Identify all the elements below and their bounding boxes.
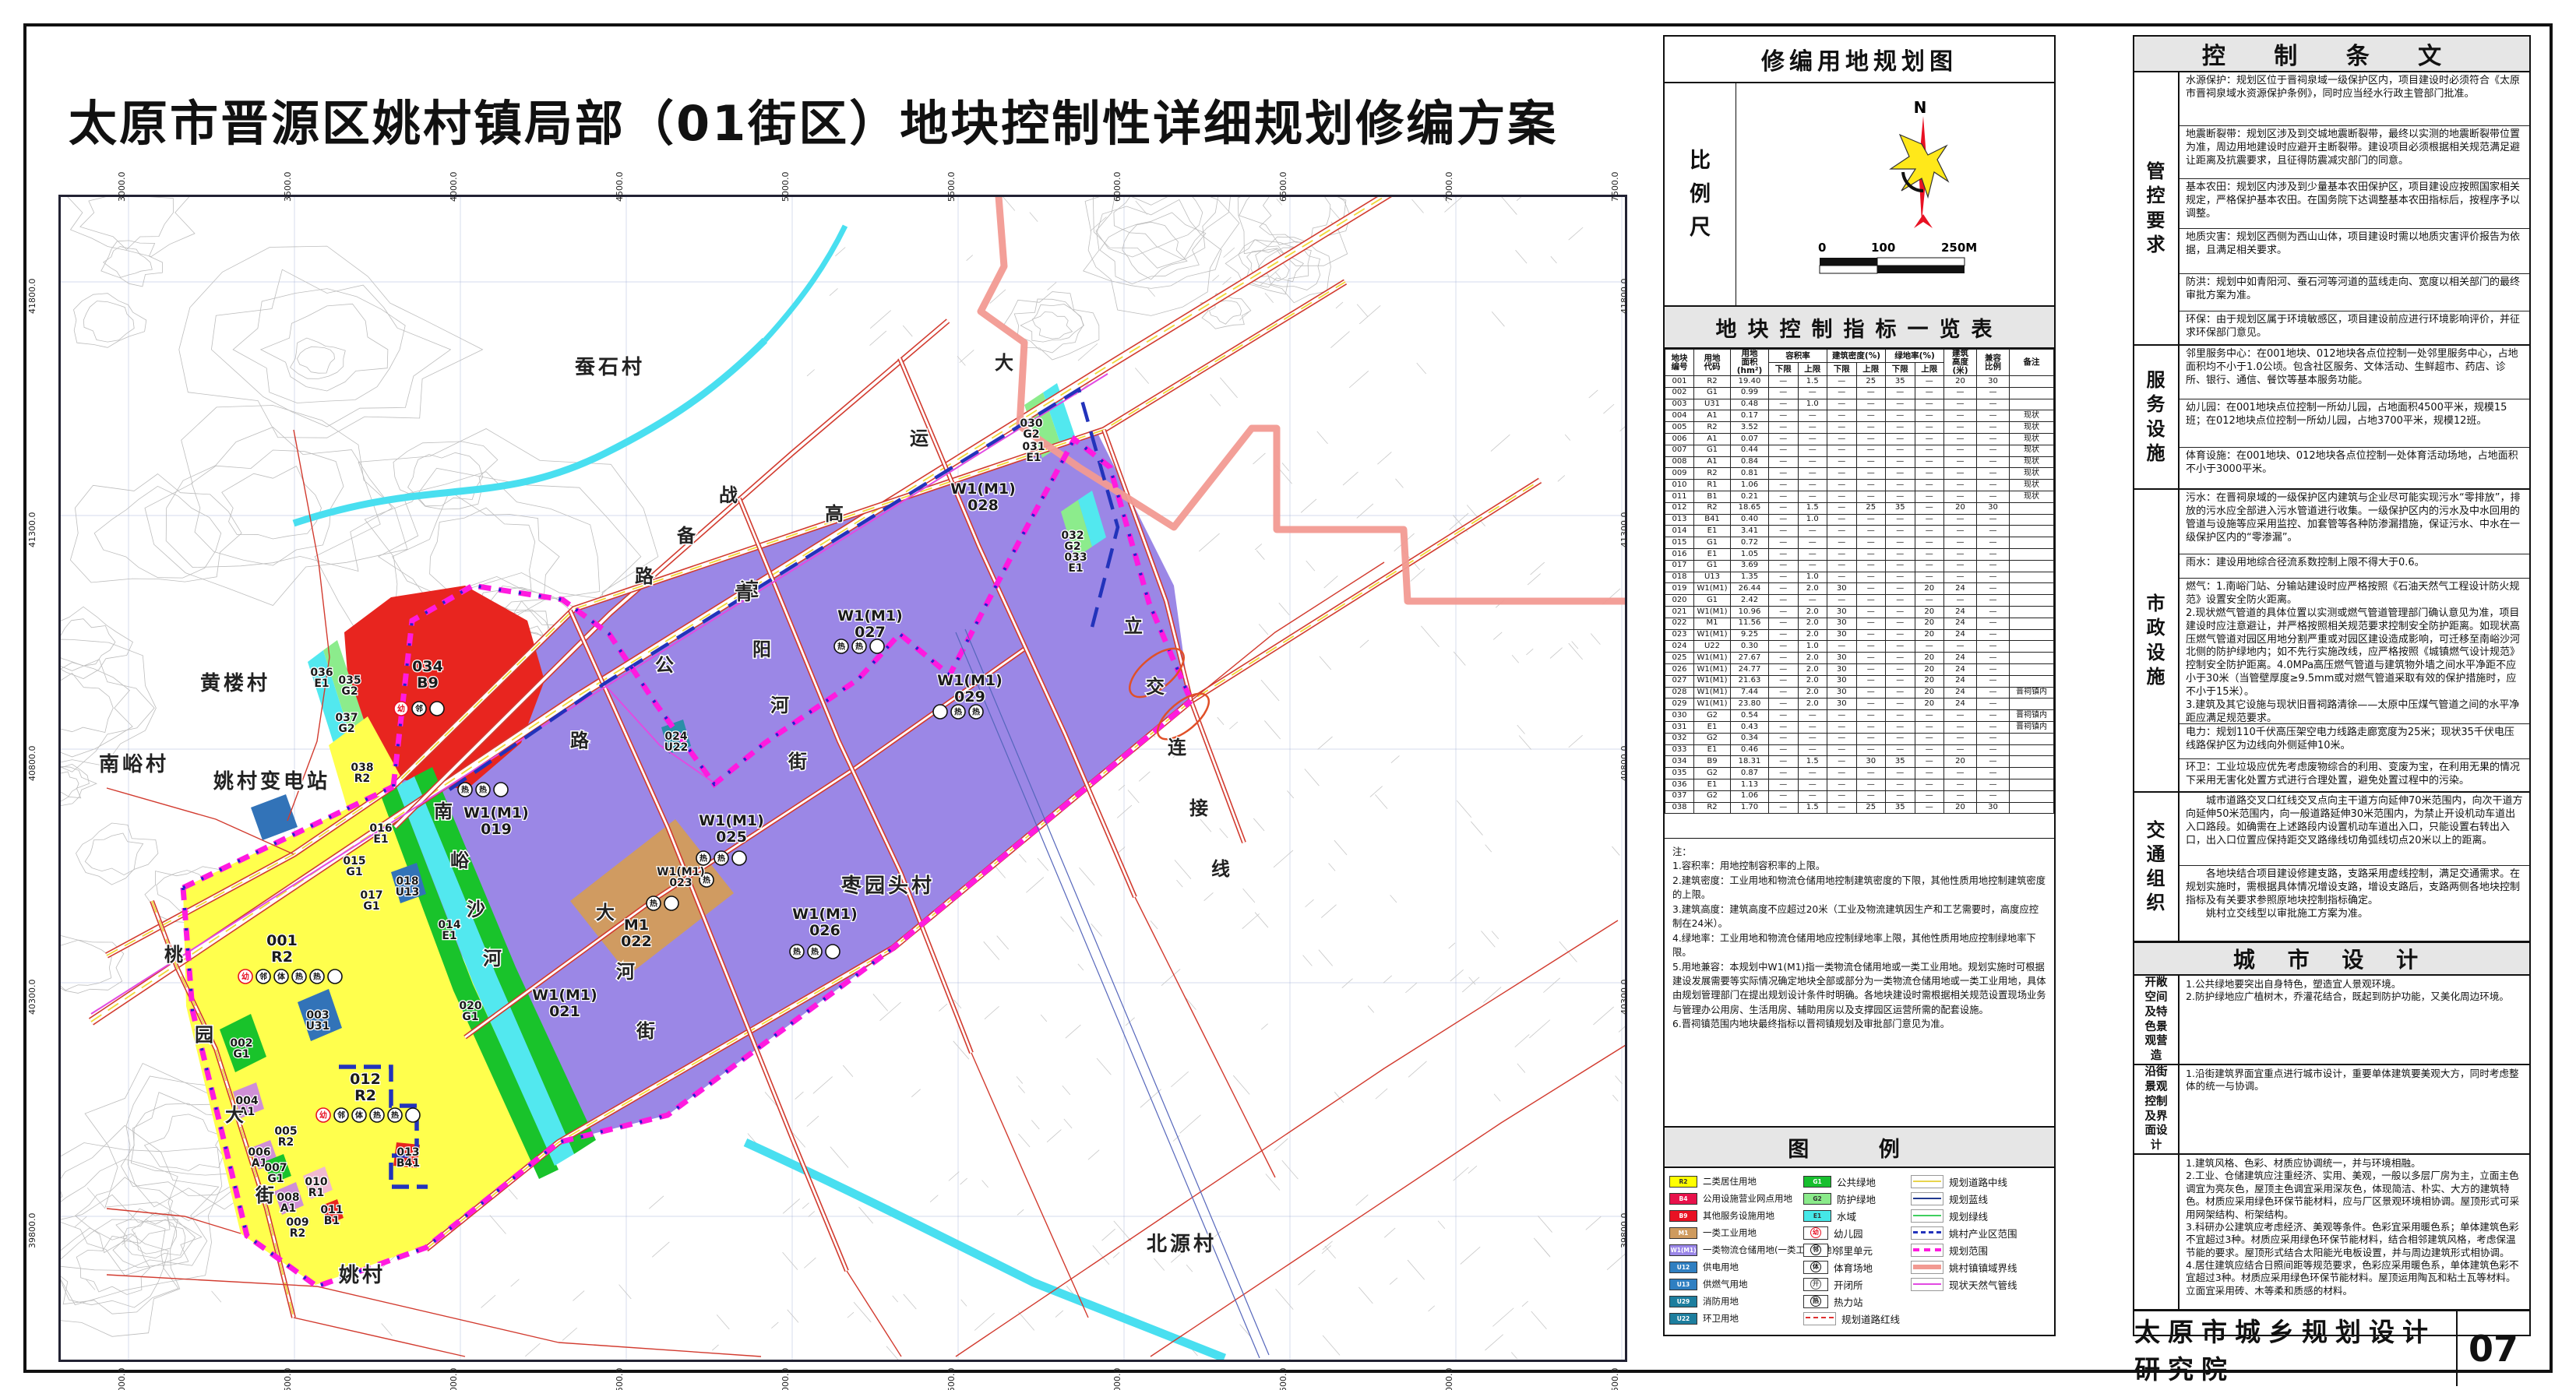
- table-row: 024U220.30—1.0——————: [1665, 641, 2054, 653]
- table-cell: W1(M1): [1694, 663, 1731, 675]
- table-cell: 现状: [2010, 422, 2054, 434]
- svg-text:大: 大: [995, 352, 1013, 374]
- svg-text:接: 接: [1189, 797, 1208, 819]
- svg-text:100: 100: [1871, 241, 1895, 255]
- table-cell: M1: [1694, 618, 1731, 629]
- table-cell: 20: [1944, 502, 1977, 514]
- legend-label: 体育场地: [1834, 1260, 1873, 1275]
- table-cell: 1.0: [1798, 641, 1827, 653]
- table-cell: —: [1827, 491, 1857, 503]
- svg-text:热: 热: [700, 853, 707, 864]
- table-cell: —: [1944, 641, 1977, 653]
- table-cell: B9: [1694, 756, 1731, 768]
- provision-item: 防洪：规划中如青阳河、蚕石河等河道的蓝线走向、宽度以相关部门的最终审批方案为准。: [2180, 273, 2529, 311]
- table-cell: —: [1886, 733, 1915, 744]
- table-cell: —: [1915, 768, 1944, 779]
- table-cell: —: [1856, 744, 1886, 756]
- svg-text:黄楼村: 黄楼村: [200, 672, 270, 695]
- table-cell: —: [1769, 779, 1799, 790]
- table-cell: 20: [1915, 675, 1944, 687]
- table-header: 兼容 比例: [1977, 350, 2010, 376]
- legend-item: 规划绿线: [1911, 1207, 2043, 1224]
- svg-text:幼: 幼: [397, 704, 405, 714]
- svg-text:热: 热: [479, 785, 487, 795]
- table-cell: 30: [1827, 653, 1857, 664]
- table-cell: E1: [1694, 779, 1731, 790]
- svg-text:W1(M1): W1(M1): [699, 812, 764, 829]
- urban-design-section: 开敞空间及特色景观营造1.公共绿地要突出自身特色，塑造宜人景观环境。 2.防护绿…: [2134, 976, 2529, 1065]
- table-cell: 24: [1944, 629, 1977, 641]
- svg-text:枣园头村: 枣园头村: [840, 874, 935, 898]
- coordinate-tick: 40800.0: [27, 746, 37, 782]
- legend-item: U29消防用地: [1669, 1293, 1803, 1310]
- table-cell: 0.40: [1731, 514, 1769, 526]
- table-cell: —: [1769, 480, 1799, 491]
- table-cell: 24: [1944, 699, 1977, 710]
- table-cell: —: [1886, 445, 1915, 456]
- svg-text:E1: E1: [1068, 562, 1083, 575]
- table-cell: —: [1798, 434, 1827, 445]
- table-cell: —: [1915, 560, 1944, 572]
- table-header: 绿地率(%): [1886, 350, 1944, 363]
- urban-design-section: 沿街景观控制及界面设计1.沿街建筑界面宜重点进行城市设计，重要单体建筑要美观大方…: [2134, 1065, 2529, 1155]
- svg-text:E1: E1: [373, 833, 388, 846]
- table-cell: [2010, 699, 2054, 710]
- table-cell: —: [1769, 721, 1799, 733]
- table-cell: —: [1769, 663, 1799, 675]
- table-cell: —: [1886, 710, 1915, 722]
- table-cell: —: [1915, 572, 1944, 583]
- table-row: 038R21.70—1.5—2535—2030: [1665, 802, 2054, 814]
- table-title: 地块控制指标一览表: [1665, 307, 2054, 349]
- svg-text:园: 园: [195, 1024, 213, 1046]
- table-cell: G2: [1694, 733, 1731, 744]
- table-cell: —: [1856, 733, 1886, 744]
- table-cell: —: [1856, 422, 1886, 434]
- legend-item: 规划道路红线: [1803, 1310, 1911, 1327]
- table-cell: —: [1798, 733, 1827, 744]
- table-cell: —: [1915, 595, 1944, 607]
- svg-text:邻: 邻: [337, 1110, 345, 1121]
- table-row: 005R23.52————————现状: [1665, 422, 2054, 434]
- table-cell: 30: [1977, 502, 2010, 514]
- table-cell: —: [1915, 502, 1944, 514]
- table-cell: —: [1915, 422, 1944, 434]
- table-cell: 现状: [2010, 491, 2054, 503]
- table-cell: R2: [1694, 468, 1731, 480]
- table-cell: 26.44: [1731, 583, 1769, 595]
- svg-text:A1: A1: [280, 1202, 297, 1215]
- table-cell: —: [1827, 710, 1857, 722]
- provision-item: 雨水：建设用地综合径流系数控制上限不得大于0.6。: [2180, 554, 2529, 578]
- legend-line-sample: [1911, 1209, 1943, 1223]
- table-cell: —: [1977, 756, 2010, 768]
- table-cell: —: [1798, 560, 1827, 572]
- table-cell: 现状: [2010, 456, 2054, 468]
- table-cell: —: [1827, 468, 1857, 480]
- provision-section: 服务设施邻里服务中心：在001地块、012地块各点位控制一处邻里服务中心，占地面…: [2134, 346, 2529, 490]
- provision-item: 城市道路交叉口红线交叉点向主干道方向延伸70米范围内，向次干道方向延伸50米范围…: [2180, 793, 2529, 865]
- table-cell: —: [1769, 699, 1799, 710]
- table-cell: —: [1977, 445, 2010, 456]
- svg-text:桃: 桃: [164, 944, 183, 966]
- table-cell: [2010, 387, 2054, 399]
- coordinate-tick: 39800.0: [1619, 1213, 1630, 1249]
- svg-text:R2: R2: [271, 948, 293, 966]
- table-cell: —: [1886, 790, 1915, 802]
- table-cell: —: [1886, 434, 1915, 445]
- table-cell: —: [1977, 618, 2010, 629]
- table-cell: —: [1769, 537, 1799, 549]
- table-cell: —: [1977, 514, 2010, 526]
- table-cell: —: [1856, 537, 1886, 549]
- svg-text:028: 028: [967, 497, 999, 514]
- table-cell: U22: [1694, 641, 1731, 653]
- table-cell: —: [1769, 387, 1799, 399]
- svg-text:G1: G1: [233, 1048, 249, 1061]
- legend-label: 二类居住用地: [1703, 1175, 1757, 1188]
- table-cell: W1(M1): [1694, 653, 1731, 664]
- coordinate-tick: 41300.0: [27, 512, 37, 548]
- table-cell: —: [1856, 779, 1886, 790]
- table-cell: [2010, 583, 2054, 595]
- table-cell: [2010, 560, 2054, 572]
- legend-facility-icon: 开: [1803, 1278, 1828, 1291]
- table-cell: [2010, 629, 2054, 641]
- table-cell: G1: [1694, 445, 1731, 456]
- table-cell: 011: [1665, 491, 1694, 503]
- table-row: 026W1(M1)24.77—2.030——2024—: [1665, 663, 2054, 675]
- table-cell: —: [1977, 710, 2010, 722]
- legend-item: E1水域: [1803, 1207, 1911, 1224]
- table-cell: 35: [1886, 756, 1915, 768]
- svg-text:峪: 峪: [450, 850, 470, 871]
- legend-item: B9其他服务设施用地: [1669, 1207, 1803, 1224]
- table-cell: 3.69: [1731, 560, 1769, 572]
- table-row: 027W1(M1)21.63—2.030——2024—: [1665, 675, 2054, 687]
- table-cell: 025: [1665, 653, 1694, 664]
- table-cell: [2010, 618, 2054, 629]
- coordinate-tick: 4500.0: [615, 172, 625, 202]
- table-cell: [2010, 376, 2054, 388]
- table-cell: —: [1977, 629, 2010, 641]
- svg-text:U13: U13: [396, 886, 420, 899]
- svg-text:体: 体: [277, 972, 286, 982]
- table-cell: 24: [1944, 618, 1977, 629]
- svg-text:立: 立: [1124, 615, 1143, 637]
- table-cell: —: [1798, 468, 1827, 480]
- table-cell: —: [1769, 399, 1799, 410]
- table-cell: 30: [1977, 802, 2010, 814]
- table-cell: —: [1856, 675, 1886, 687]
- table-cell: —: [1856, 456, 1886, 468]
- legend-label: 幼儿园: [1834, 1226, 1863, 1240]
- legend-facility-icon: 热: [1803, 1295, 1828, 1308]
- table-cell: —: [1977, 687, 2010, 699]
- table-cell: —: [1944, 526, 1977, 537]
- svg-text:街: 街: [255, 1184, 274, 1206]
- coordinate-tick: 7500.0: [1610, 172, 1620, 202]
- provision-item: 燃气：1.南峪门站、分输站建设时应严格按照《石油天然气工程设计防火规范》设置安全…: [2180, 578, 2529, 723]
- table-cell: 20: [1944, 376, 1977, 388]
- table-cell: —: [1977, 537, 2010, 549]
- table-row: 029W1(M1)23.80—2.030——2024—: [1665, 699, 2054, 710]
- svg-text:高: 高: [825, 503, 844, 525]
- table-cell: —: [1827, 641, 1857, 653]
- table-cell: —: [1944, 733, 1977, 744]
- table-cell: —: [1944, 399, 1977, 410]
- legend-label: 防护绿地: [1837, 1191, 1876, 1206]
- table-cell: —: [1944, 768, 1977, 779]
- page-title: 太原市晋源区姚村镇局部（01街区）地块控制性详细规划修编方案: [69, 84, 1558, 154]
- table-cell: 033: [1665, 744, 1694, 756]
- table-row: 007G10.44————————现状: [1665, 445, 2054, 456]
- table-cell: 001: [1665, 376, 1694, 388]
- legend-item: M1一类工业用地: [1669, 1224, 1803, 1241]
- table-cell: —: [1798, 768, 1827, 779]
- legend-label: 邻里单元: [1834, 1243, 1873, 1258]
- svg-text:体: 体: [355, 1110, 364, 1121]
- svg-text:街: 街: [636, 1020, 655, 1042]
- table-cell: 24: [1944, 675, 1977, 687]
- svg-text:青: 青: [735, 582, 753, 604]
- legend-line-sample: [1911, 1244, 1943, 1257]
- table-cell: —: [1798, 422, 1827, 434]
- coordinate-tick: 5000.0: [781, 172, 791, 202]
- urban-design-item: 1.建筑风格、色彩、材质应协调统一，并与环境相融。 2.工业、仓储建筑应注重经济…: [2180, 1155, 2529, 1309]
- table-cell: 30: [1827, 583, 1857, 595]
- table-cell: —: [1977, 491, 2010, 503]
- table-cell: —: [1944, 480, 1977, 491]
- table-cell: —: [1977, 410, 2010, 422]
- coordinate-tick: 5500.0: [946, 1368, 957, 1390]
- table-cell: —: [1856, 641, 1886, 653]
- table-row: 009R20.81————————现状: [1665, 468, 2054, 480]
- table-cell: 23.80: [1731, 699, 1769, 710]
- table-cell: G1: [1694, 387, 1731, 399]
- legend-item: 规划道路中线: [1911, 1173, 2043, 1190]
- svg-text:W1(M1): W1(M1): [937, 672, 1003, 689]
- svg-text:公: 公: [655, 654, 674, 676]
- table-header: 建筑密度(%): [1827, 350, 1886, 363]
- table-cell: 0.21: [1731, 491, 1769, 503]
- table-cell: R2: [1694, 802, 1731, 814]
- table-header: 下限: [1827, 363, 1857, 376]
- table-cell: 21.63: [1731, 675, 1769, 687]
- legend-item: 幼幼儿园: [1803, 1224, 1911, 1241]
- table-cell: —: [1886, 687, 1915, 699]
- coordinate-tick: 3000.0: [117, 1368, 127, 1390]
- table-cell: 1.06: [1731, 790, 1769, 802]
- coordinate-tick: 3500.0: [283, 1368, 293, 1390]
- table-cell: —: [1769, 595, 1799, 607]
- legend-label: 其他服务设施用地: [1703, 1209, 1774, 1222]
- table-cell: —: [1856, 514, 1886, 526]
- table-cell: —: [1944, 779, 1977, 790]
- table-cell: 20: [1915, 653, 1944, 664]
- svg-text:热: 热: [972, 707, 980, 717]
- table-cell: —: [1915, 445, 1944, 456]
- svg-text:连: 连: [1168, 737, 1187, 758]
- legend-swatch: G1: [1803, 1176, 1831, 1188]
- legend-label: 姚村产业区范围: [1949, 1226, 2017, 1240]
- table-cell: 19.40: [1731, 376, 1769, 388]
- table-cell: —: [1769, 687, 1799, 699]
- table-cell: W1(M1): [1694, 629, 1731, 641]
- table-cell: 024: [1665, 641, 1694, 653]
- table-cell: —: [1827, 480, 1857, 491]
- coordinate-tick: 40800.0: [1619, 746, 1630, 782]
- legend-swatch: G2: [1803, 1193, 1831, 1205]
- table-cell: 036: [1665, 779, 1694, 790]
- table-cell: —: [1977, 606, 2010, 618]
- svg-text:路: 路: [635, 565, 654, 587]
- table-cell: 0.17: [1731, 410, 1769, 422]
- legend-item: G2防护绿地: [1803, 1190, 1911, 1207]
- table-cell: 现状: [2010, 468, 2054, 480]
- table-cell: —: [1769, 744, 1799, 756]
- svg-text:热: 热: [650, 899, 657, 909]
- sheet-number: 07: [2456, 1311, 2529, 1386]
- table-cell: 1.5: [1798, 502, 1827, 514]
- table-cell: 现状: [2010, 434, 2054, 445]
- legend-swatch: B9: [1669, 1210, 1697, 1222]
- table-cell: —: [1798, 779, 1827, 790]
- legend-item: 姚村产业区范围: [1911, 1224, 2043, 1241]
- legend: R2二类居住用地B4公用设施营业网点用地B9其他服务设施用地M1一类工业用地W1…: [1665, 1168, 2054, 1335]
- table-cell: [2010, 756, 2054, 768]
- table-cell: 18.65: [1731, 502, 1769, 514]
- table-cell: 032: [1665, 733, 1694, 744]
- legend-item: U13供燃气用地: [1669, 1276, 1803, 1293]
- svg-text:250M: 250M: [1941, 241, 1977, 255]
- table-cell: —: [1977, 779, 2010, 790]
- table-header: 用地 代码: [1694, 350, 1731, 376]
- table-cell: 0.34: [1731, 733, 1769, 744]
- svg-text:R1: R1: [308, 1187, 325, 1199]
- table-cell: 20: [1944, 756, 1977, 768]
- legend-line-sample: [1911, 1175, 1943, 1188]
- table-cell: —: [1856, 653, 1886, 664]
- table-cell: —: [1977, 790, 2010, 802]
- table-cell: —: [1769, 606, 1799, 618]
- table-row: 013B410.40—1.0——————: [1665, 514, 2054, 526]
- table-cell: 24: [1944, 606, 1977, 618]
- table-cell: 019: [1665, 583, 1694, 595]
- table-cell: R1: [1694, 480, 1731, 491]
- table-cell: [2010, 502, 2054, 514]
- table-cell: —: [1798, 387, 1827, 399]
- table-row: 032G20.34————————: [1665, 733, 2054, 744]
- table-cell: —: [1915, 779, 1944, 790]
- table-cell: 1.0: [1798, 572, 1827, 583]
- legend-item: 规划蓝线: [1911, 1190, 2043, 1207]
- table-cell: 2.0: [1798, 687, 1827, 699]
- coordinate-tick: 39800.0: [27, 1213, 37, 1249]
- table-cell: E1: [1694, 744, 1731, 756]
- legend-item: G1公共绿地: [1803, 1173, 1911, 1190]
- svg-text:G1: G1: [363, 900, 379, 913]
- table-cell: —: [1977, 675, 2010, 687]
- svg-text:021: 021: [549, 1003, 580, 1020]
- legend-facility-icon: 邻: [1803, 1244, 1828, 1257]
- table-row: 016E11.05————————: [1665, 549, 2054, 561]
- table-cell: 027: [1665, 675, 1694, 687]
- table-cell: —: [1798, 491, 1827, 503]
- table-cell: 020: [1665, 595, 1694, 607]
- table-cell: 30: [1827, 699, 1857, 710]
- table-cell: 18.31: [1731, 756, 1769, 768]
- table-cell: —: [1886, 595, 1915, 607]
- table-cell: 2.0: [1798, 699, 1827, 710]
- table-cell: —: [1915, 790, 1944, 802]
- table-cell: —: [1886, 491, 1915, 503]
- table-cell: 005: [1665, 422, 1694, 434]
- table-cell: [2010, 595, 2054, 607]
- urban-design-title: 城 市 设 计: [2134, 942, 2529, 976]
- table-cell: —: [1856, 663, 1886, 675]
- table-row: 037G21.06————————: [1665, 790, 2054, 802]
- table-cell: 20: [1915, 629, 1944, 641]
- table-cell: —: [1944, 387, 1977, 399]
- legend-title: 图 例: [1665, 1128, 2054, 1168]
- table-cell: —: [1856, 699, 1886, 710]
- svg-text:W1(M1): W1(M1): [837, 607, 903, 625]
- table-cell: 017: [1665, 560, 1694, 572]
- table-cell: 20: [1915, 583, 1944, 595]
- legend-label: 公共绿地: [1837, 1174, 1876, 1189]
- coordinate-tick: 4500.0: [615, 1368, 625, 1390]
- table-cell: —: [1856, 710, 1886, 722]
- table-cell: —: [1977, 468, 2010, 480]
- table-cell: [2010, 399, 2054, 410]
- table-cell: —: [1886, 768, 1915, 779]
- table-cell: 30: [1977, 376, 2010, 388]
- legend-item: U12供电用地: [1669, 1258, 1803, 1276]
- svg-text:战: 战: [719, 484, 738, 506]
- legend-label: 现状天然气管线: [1949, 1277, 2017, 1292]
- table-cell: 30: [1827, 606, 1857, 618]
- table-cell: [2010, 514, 2054, 526]
- legend-item: 现状天然气管线: [1911, 1276, 2043, 1293]
- coordinate-tick: 40300.0: [1619, 980, 1630, 1015]
- scale-box: 比例尺 N 0 100 250M: [1665, 83, 2054, 307]
- table-cell: 038: [1665, 802, 1694, 814]
- table-cell: 24: [1944, 653, 1977, 664]
- table-cell: —: [1769, 468, 1799, 480]
- table-cell: [2010, 768, 2054, 779]
- table-cell: 30: [1827, 663, 1857, 675]
- table-cell: 030: [1665, 710, 1694, 722]
- table-cell: —: [1827, 422, 1857, 434]
- coordinate-tick: 5000.0: [781, 1368, 791, 1390]
- urban-design-item: 1.公共绿地要突出自身特色，塑造宜人景观环境。 2.防护绿地应广植树木，乔灌花结…: [2180, 976, 2529, 1033]
- table-cell: 11.56: [1731, 618, 1769, 629]
- table-header: 建筑 高度 (米): [1944, 350, 1977, 376]
- svg-text:北源村: 北源村: [1147, 1233, 1217, 1256]
- legend-swatch: B4: [1669, 1193, 1697, 1205]
- table-cell: —: [1915, 387, 1944, 399]
- table-cell: 1.0: [1798, 399, 1827, 410]
- provision-item: 水源保护：规划区位于晋祠泉域一级保护区内，项目建设时必须符合《太原市晋祠泉域水资…: [2180, 72, 2529, 125]
- legend-line-sample: [1911, 1278, 1943, 1291]
- svg-text:G1: G1: [267, 1173, 284, 1185]
- table-cell: 现状: [2010, 445, 2054, 456]
- table-cell: 007: [1665, 445, 1694, 456]
- table-cell: —: [1977, 653, 2010, 664]
- provision-item: 电力：规划110千伏高压架空电力线路走廊宽度为25米；现状35千伏电压线路保护区…: [2180, 723, 2529, 758]
- table-cell: 0.46: [1731, 744, 1769, 756]
